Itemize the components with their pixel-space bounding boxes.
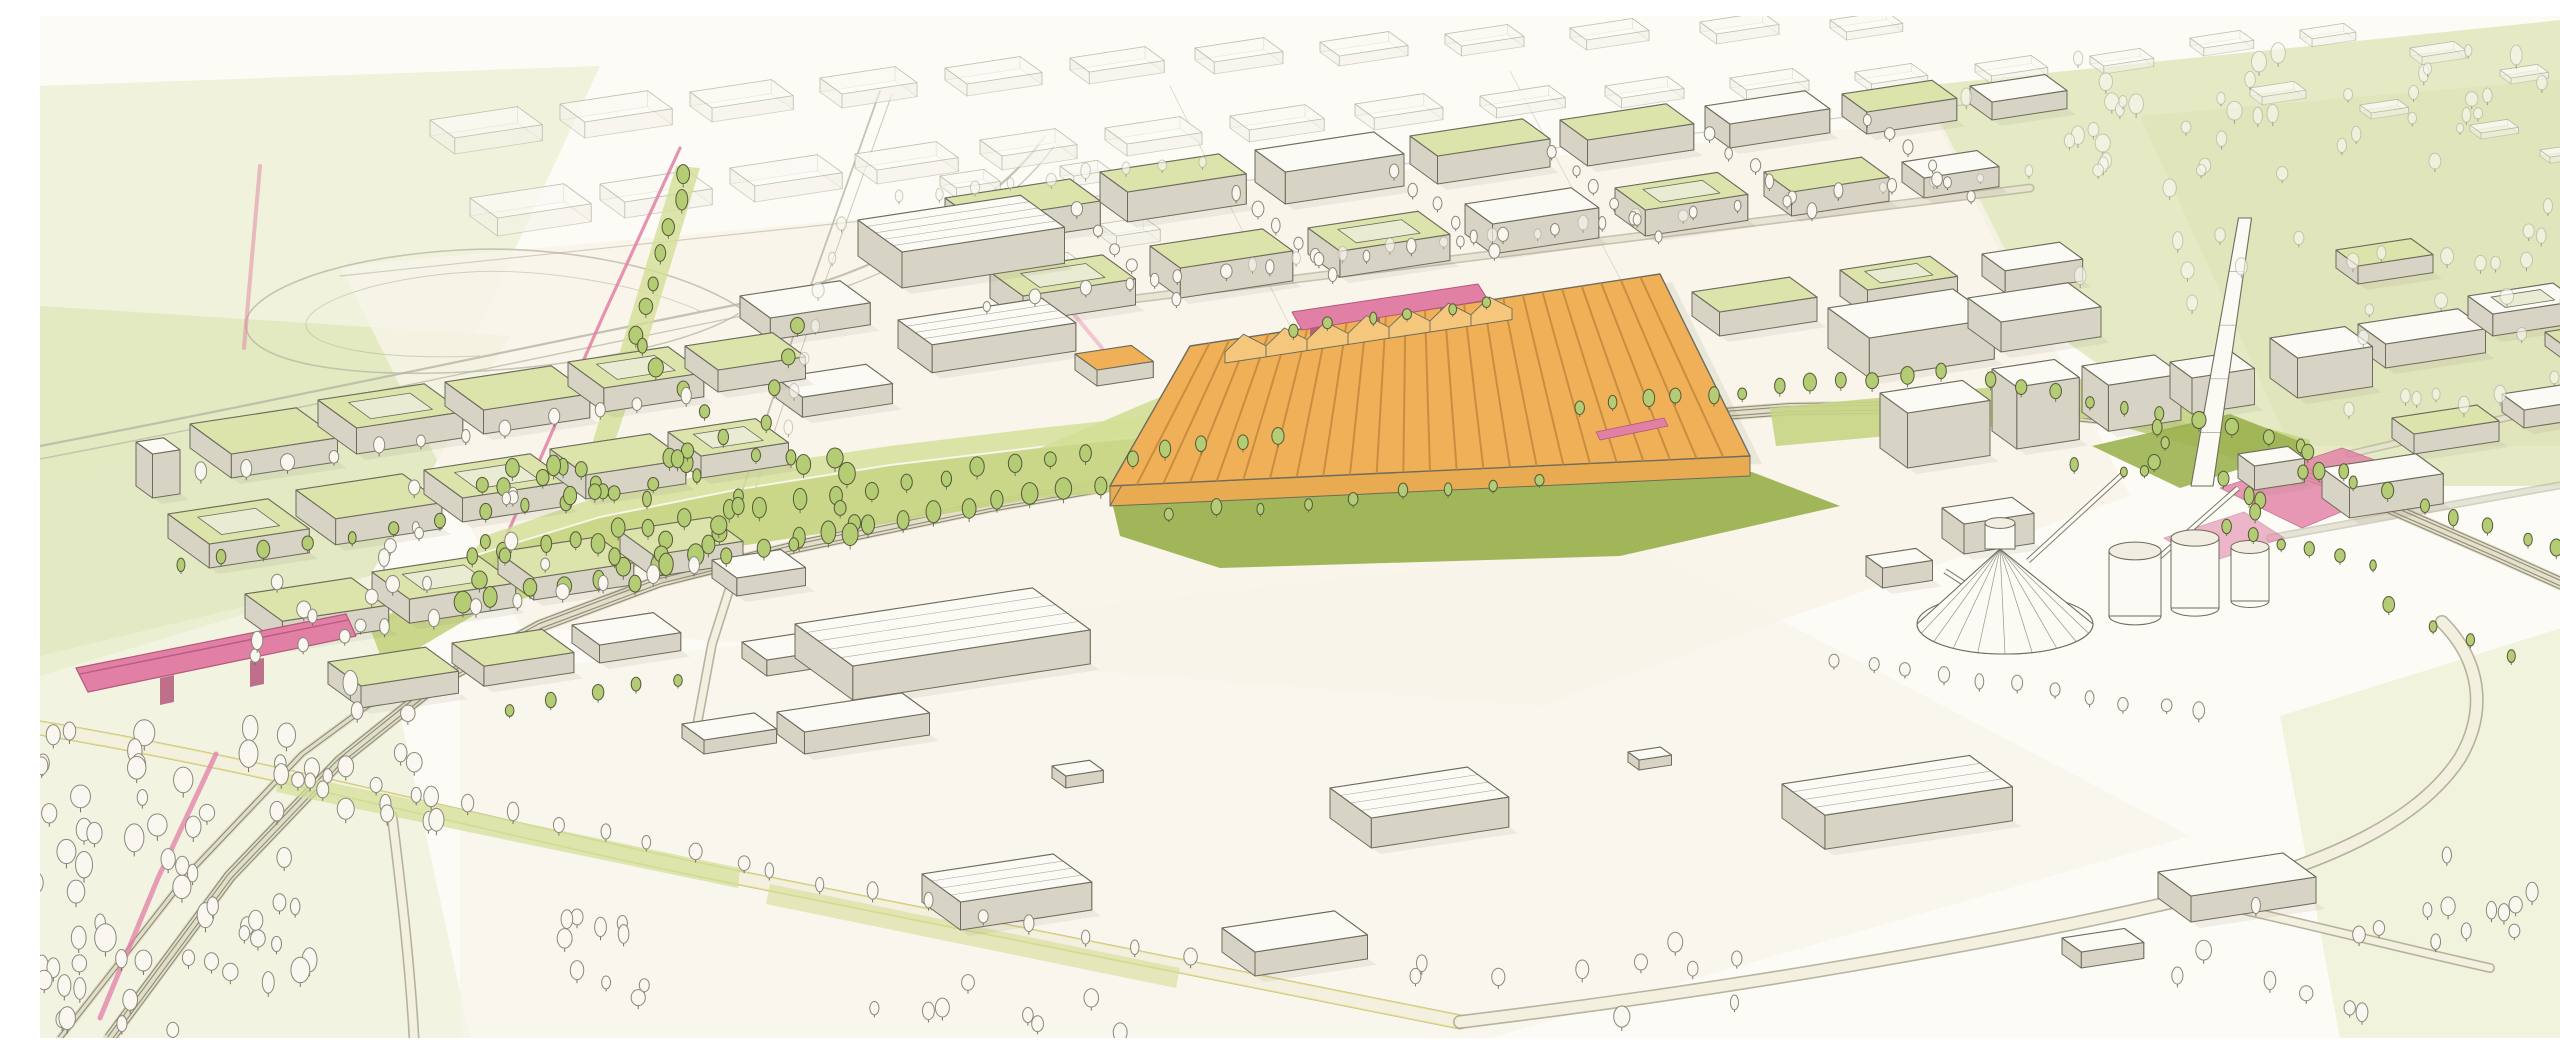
masterplan-figure: Aerial perspective masterplan illustrati… — [40, 16, 2560, 1038]
masterplan-illustration: Aerial perspective masterplan illustrati… — [40, 16, 2560, 1038]
